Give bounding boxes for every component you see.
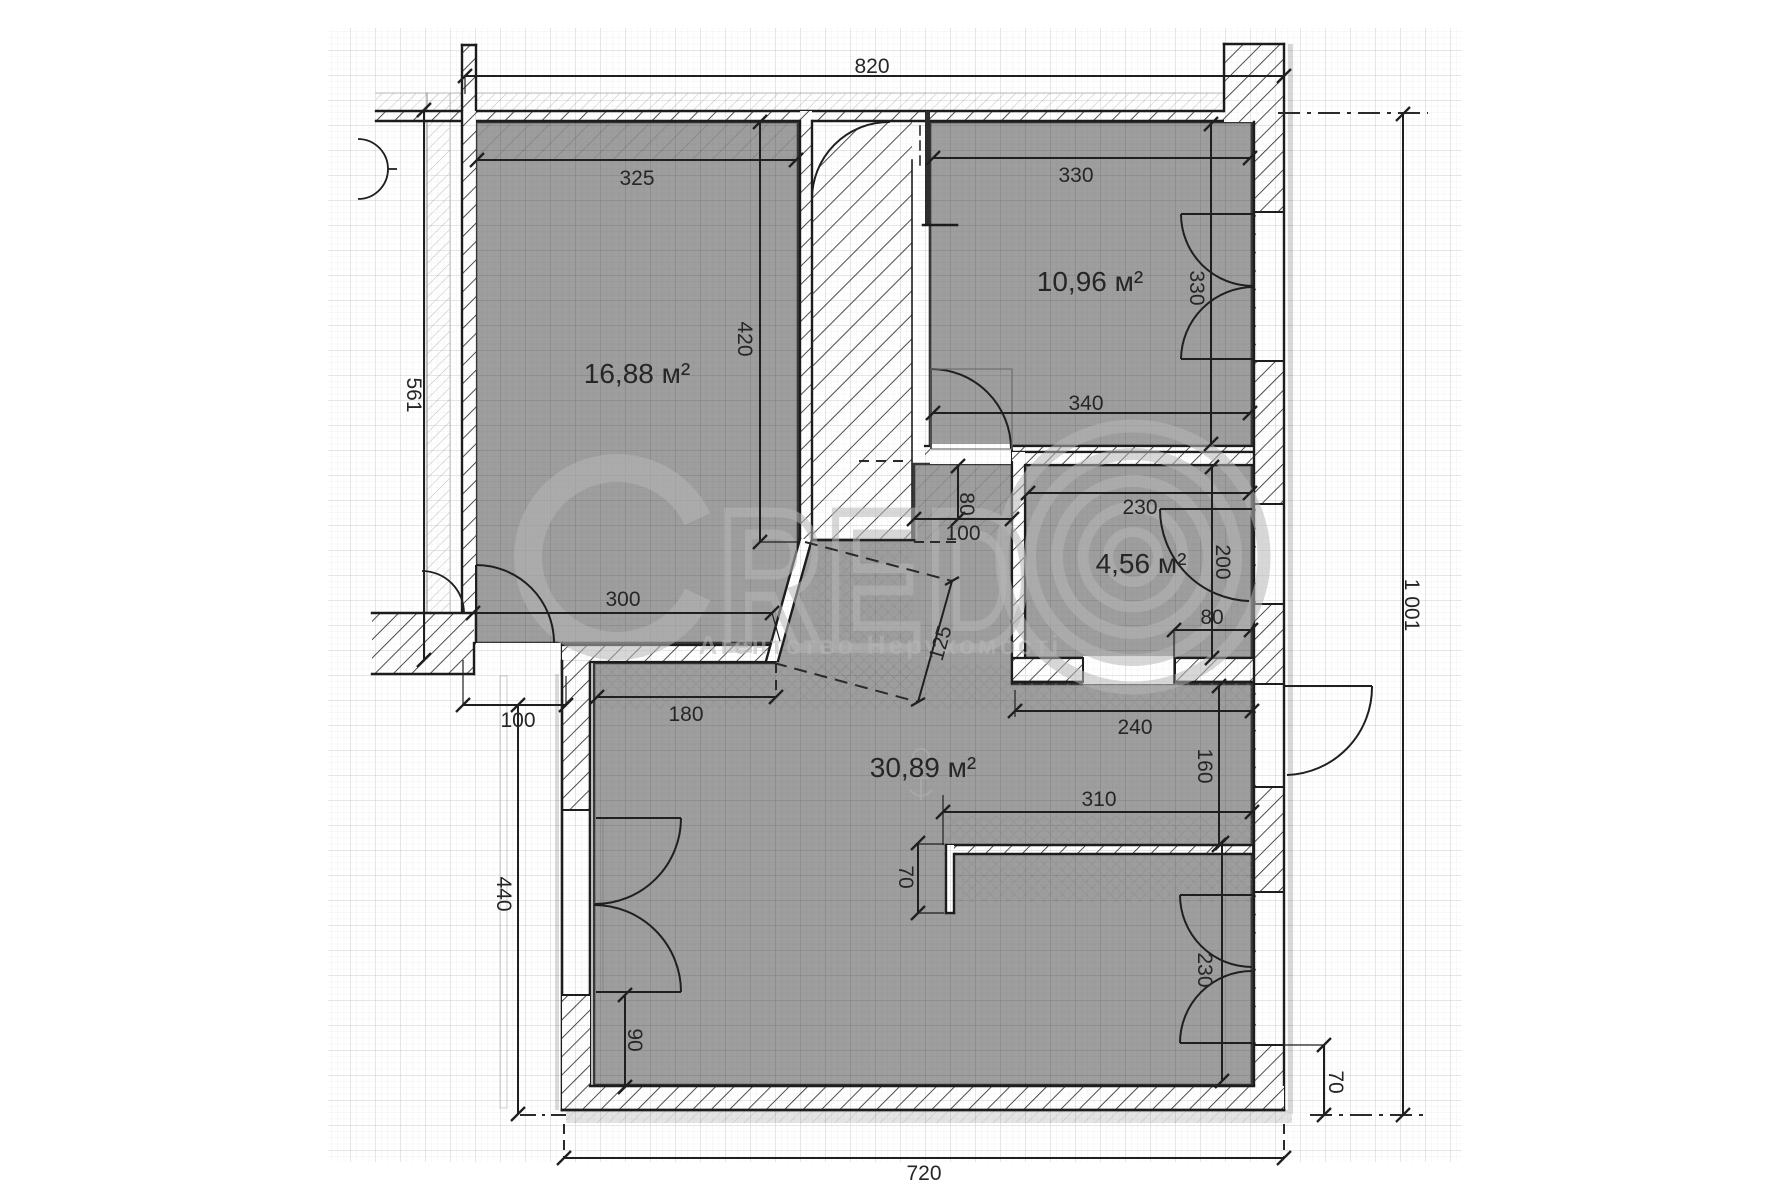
svg-text:720: 720: [906, 1162, 941, 1181]
svg-text:330: 330: [1058, 164, 1093, 187]
svg-text:70: 70: [894, 865, 917, 888]
svg-text:1 001: 1 001: [1400, 579, 1423, 632]
svg-text:100: 100: [500, 709, 535, 732]
svg-text:10,96 м²: 10,96 м²: [1037, 266, 1143, 297]
svg-text:561: 561: [402, 377, 425, 412]
svg-text:330: 330: [1185, 270, 1208, 305]
svg-text:160: 160: [1193, 748, 1216, 783]
svg-text:240: 240: [1117, 716, 1152, 739]
svg-text:230: 230: [1122, 496, 1157, 519]
svg-text:16,88 м²: 16,88 м²: [584, 358, 690, 389]
svg-text:310: 310: [1081, 788, 1116, 811]
svg-text:340: 340: [1068, 392, 1103, 415]
svg-text:300: 300: [605, 588, 640, 611]
svg-text:440: 440: [492, 876, 515, 911]
svg-text:100: 100: [945, 522, 980, 545]
svg-text:420: 420: [733, 321, 756, 356]
svg-text:230: 230: [1193, 952, 1216, 987]
svg-text:80: 80: [1200, 606, 1223, 629]
svg-text:70: 70: [1324, 1070, 1347, 1093]
svg-text:820: 820: [854, 55, 889, 78]
svg-text:90: 90: [623, 1028, 646, 1051]
svg-text:325: 325: [619, 167, 654, 190]
svg-text:4,56 м²: 4,56 м²: [1096, 548, 1187, 579]
svg-text:30,89 м²: 30,89 м²: [870, 752, 976, 783]
svg-text:200: 200: [1211, 544, 1234, 579]
svg-text:180: 180: [668, 703, 703, 726]
svg-text:80: 80: [955, 492, 978, 515]
svg-text:Агентство Нерухомості: Агентство Нерухомості: [699, 630, 1062, 660]
